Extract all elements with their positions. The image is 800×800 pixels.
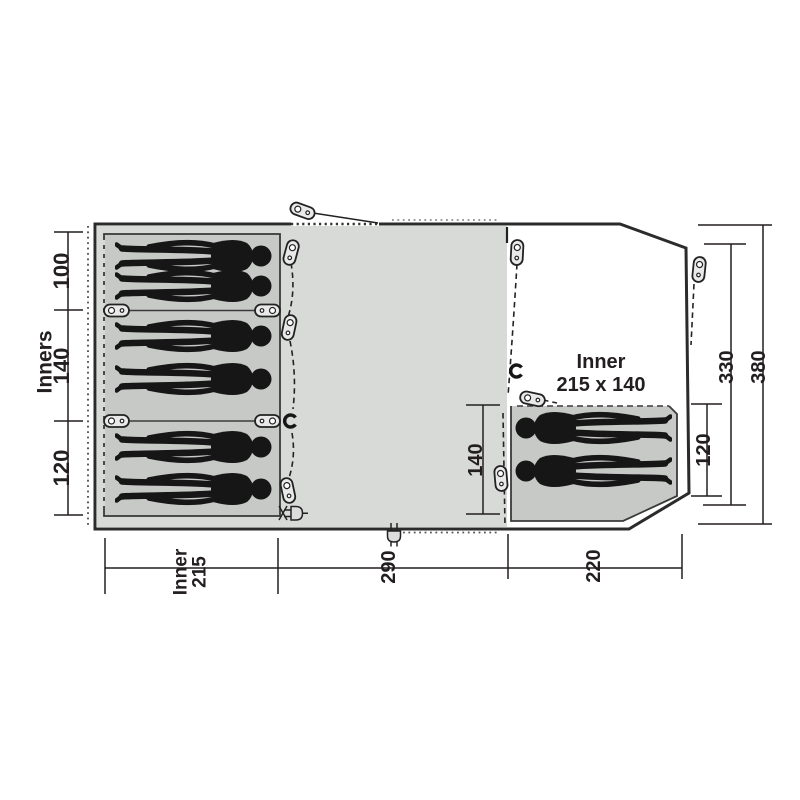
dim-label-220: 220 — [584, 549, 604, 582]
dim-label-right-120: 120 — [694, 433, 714, 466]
tent-peg-icon — [692, 256, 707, 282]
dim-label-mid-140: 140 — [466, 443, 486, 476]
dim-label-120: 120 — [51, 450, 73, 487]
dim-label-380: 380 — [749, 350, 769, 383]
dim-label-bottom-inner-215: Inner 215 — [172, 549, 211, 595]
floorplan-drawing — [0, 0, 800, 800]
tent-floorplan: Inners 100 140 120 140 120 330 380 Inner… — [0, 0, 800, 800]
dim-label-290: 290 — [379, 550, 399, 583]
dim-label-140: 140 — [51, 348, 73, 385]
right-inner-size-line2: 215 x 140 — [557, 374, 646, 397]
tent-peg-icon — [255, 305, 280, 317]
right-inner-size-line1: Inner — [557, 351, 646, 374]
dim-label-bottom-inner-line1: Inner — [172, 549, 191, 595]
tent-peg-icon — [104, 415, 129, 427]
dim-label-100: 100 — [51, 253, 73, 290]
tent-peg-icon — [255, 415, 280, 427]
tent-peg-icon — [510, 240, 523, 266]
right-inner-size-label: Inner 215 x 140 — [557, 351, 646, 397]
tent-peg-icon — [104, 305, 129, 317]
tent-peg-icon — [494, 466, 508, 492]
dim-label-330: 330 — [717, 350, 737, 383]
dim-label-bottom-inner-line2: 215 — [191, 549, 210, 595]
